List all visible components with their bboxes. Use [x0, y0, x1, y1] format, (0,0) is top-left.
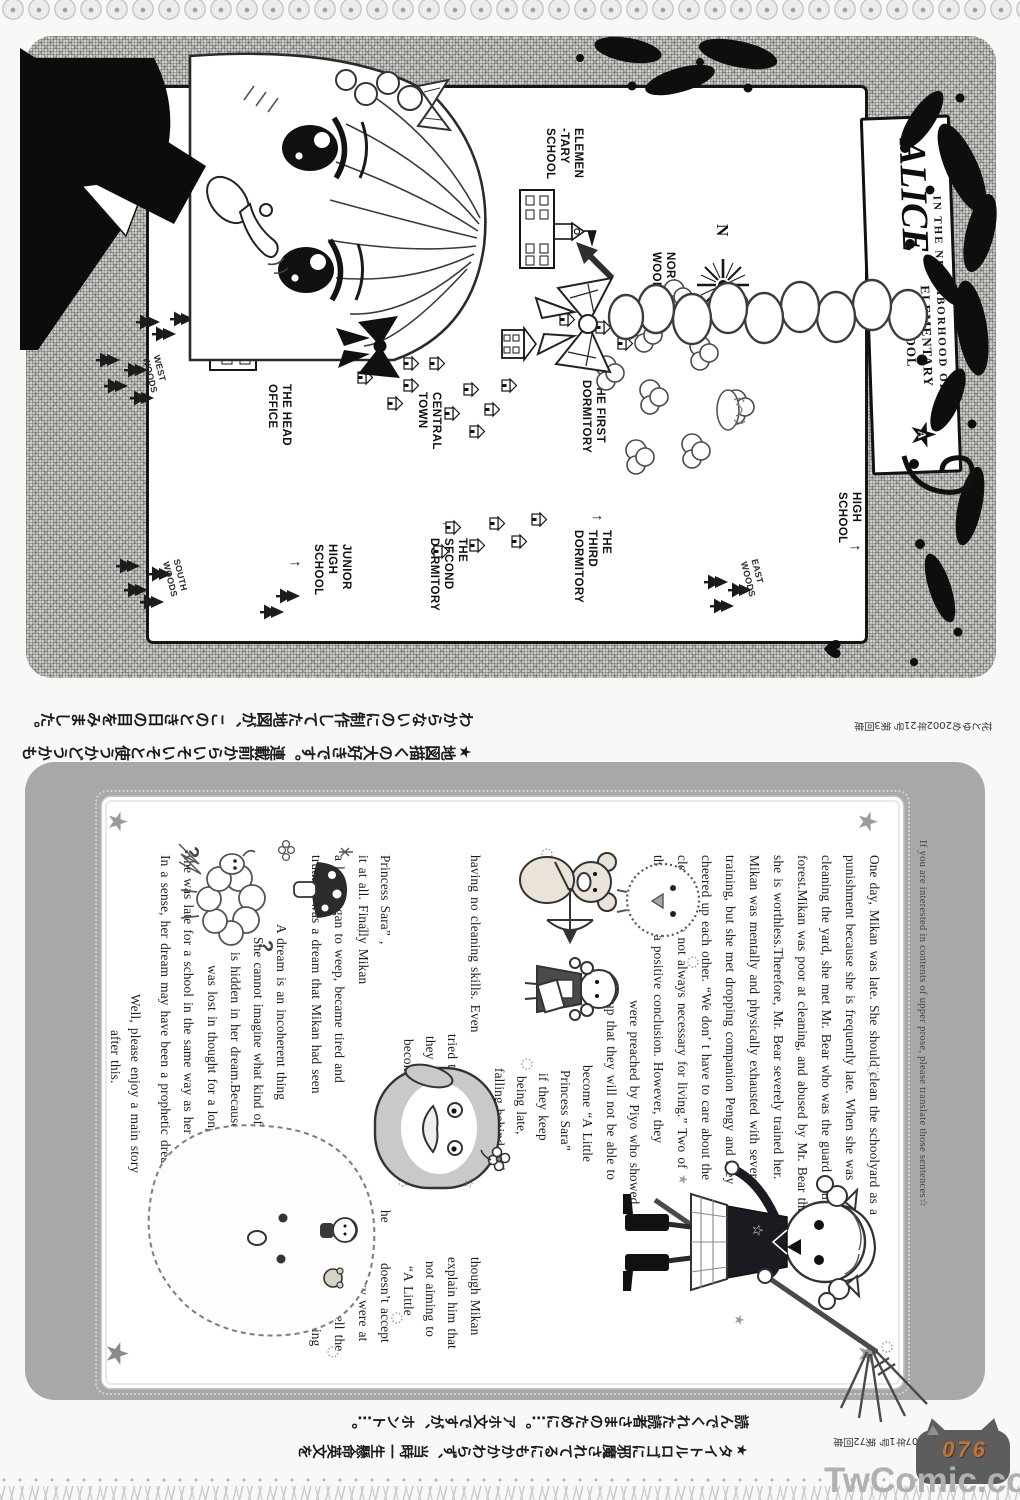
- prose-line: and: [355, 1210, 371, 1230]
- prose-line: cleaning. It is not always necessary for…: [674, 855, 690, 1169]
- map-label-junior-high-school: JUNIOR HIGH SCHOOL: [311, 544, 352, 596]
- map-label-head-office: THE HEAD OFFICE: [264, 384, 292, 446]
- prose-line: forest.Mikan was poor at cleaning, and a…: [794, 855, 810, 1218]
- map-label-junior-high-arrow: ↑: [286, 560, 304, 568]
- prose-line: Well, please enjoy a main story: [127, 994, 143, 1173]
- prose-line: tried to: [444, 1034, 460, 1075]
- map-label-northern-woods: NORTHERN WOODS: [648, 252, 676, 320]
- map-label-third-dormitory-arrow: ↑: [588, 514, 606, 522]
- artist-caption: ★タイトルロゴに邪魔されてるにもかかわらず、当時一生懸命英文を 読んでくれた読者…: [23, 1404, 749, 1464]
- prose-line: on that morning: [308, 1256, 324, 1346]
- translate-note: If you are interested in contents of upp…: [917, 840, 929, 1208]
- map-title-banner: IN THE NEIGHBORHOOD OF ALICE ELEMENTARY …: [860, 115, 962, 476]
- map-label-central-town: CENTRAL TOWN: [414, 392, 442, 450]
- prose-line: truth, it was a dream that Mikan had see…: [308, 855, 324, 1094]
- prose-line: she is worthless.Therefore, Mr. Bear sev…: [770, 855, 786, 1180]
- prose-line: they are: [422, 1036, 438, 1081]
- prose-line: She cannot imagine what kind of message: [250, 937, 266, 1176]
- prose-line: them reached a positive conclusion. Howe…: [650, 855, 666, 1143]
- panel-story-page: If you are interested in contents of upp…: [25, 762, 985, 1462]
- map-label-high-school-arrow: ↑: [846, 544, 864, 552]
- prose-line: explain him that: [444, 1257, 460, 1349]
- prose-line: if they keep: [535, 1073, 551, 1141]
- prose-line: falling behind and: [491, 1068, 507, 1171]
- prose-line: cleaning the yard, she met Mr. Bear who …: [818, 855, 834, 1210]
- prose-line: Princess Sara” ,: [377, 855, 393, 944]
- prose-line: punishment because she is frequently lat…: [842, 855, 858, 1180]
- prose-line: Mikan was mentally and physically exhaus…: [746, 855, 762, 1184]
- prose-line: though Mikan: [467, 1257, 483, 1335]
- prose-line: training, but she met dropping companion…: [722, 855, 738, 1184]
- map-label-elementary-school: ELEMEN -TARY SCHOOL: [543, 128, 584, 180]
- prose-line: One day, Mikan was late. She should clea…: [866, 855, 882, 1215]
- prose-line: become “A Little: [579, 1065, 595, 1162]
- map-label-high-school: HIGH SCHOOL: [834, 492, 862, 544]
- map-label-first-dormitory: THE FIRST DORMITORY: [578, 380, 606, 453]
- page-number: 076: [930, 1437, 1000, 1463]
- prose-line: is hidden in her dream.Because she: [227, 952, 243, 1153]
- prose-line: he: [377, 1210, 393, 1223]
- prose-line: In a sense, her dream may have been a pr…: [157, 855, 173, 1177]
- map-title-post: ELEMENTARY SCHOOL: [900, 261, 937, 412]
- magazine-credit: 花とゆめ2002年21号 第3回扉: [752, 692, 992, 732]
- map-title-main: ALICE: [894, 139, 932, 254]
- prose-line: she was late for a school in the same wa…: [180, 855, 196, 1177]
- star-badge-icon: ★A: [904, 419, 939, 451]
- map-label-second-dormitory-arrow: ↑: [438, 520, 456, 528]
- prose-line: become: [400, 1039, 416, 1081]
- prose-line: doesn’t accept: [377, 1263, 393, 1343]
- prose-line: a loss, began to weep, became tired and: [331, 855, 347, 1083]
- prose-line: after this.: [107, 1030, 123, 1083]
- artist-caption: ★地図描くの大好きです。連載前からいそいそと使うかどうかも わからないのに制作し…: [22, 680, 474, 768]
- scanned-manga-page: IN THE NEIGHBORHOOD OF ALICE ELEMENTARY …: [0, 0, 1020, 1500]
- prose-line: it at all. Finally Mikan: [355, 855, 371, 984]
- panel-map-page: IN THE NEIGHBORHOOD OF ALICE ELEMENTARY …: [20, 28, 1000, 773]
- prose-line: Pengy were at: [355, 1261, 371, 1341]
- map-label-second-dormitory: THE SECOND DORMITORY: [427, 538, 468, 611]
- map-label-compass-n: N: [712, 224, 732, 237]
- prose-line: being late,: [513, 1076, 529, 1135]
- prose-line: up that they will not be able to: [603, 1002, 619, 1180]
- prose-line: cheered up each other. “We don’ t have t…: [698, 855, 714, 1180]
- prose-line: “A Little: [400, 1266, 416, 1316]
- watermark-text: TwComic.com: [824, 1461, 1020, 1500]
- prose-line: was lost in thought for a long time,: [204, 965, 220, 1168]
- prose-line: not aiming to: [422, 1261, 438, 1337]
- prose-line: slept.―To tell the: [331, 1250, 347, 1351]
- map-label-third-dormitory: THE THIRD DORMITORY: [571, 530, 612, 603]
- prose-line: A dream is an incoherent thing: [273, 924, 289, 1100]
- prose-line: were preached by Piyo who showed: [626, 1000, 642, 1204]
- prose-line: having no cleaning skills. Even: [467, 855, 483, 1033]
- lace-border-top: [0, 0, 1020, 30]
- prose-line: Princess Sara”: [557, 1070, 573, 1151]
